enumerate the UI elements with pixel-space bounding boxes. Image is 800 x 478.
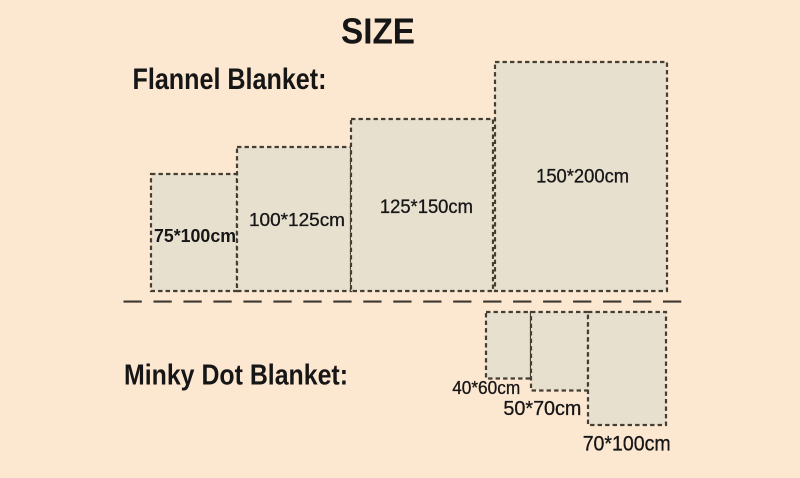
svg-text:50*70cm: 50*70cm — [503, 398, 581, 420]
svg-text:Flannel Blanket:: Flannel Blanket: — [133, 63, 327, 96]
svg-text:SIZE: SIZE — [341, 11, 415, 52]
svg-text:40*60cm: 40*60cm — [452, 377, 520, 398]
svg-text:70*100cm: 70*100cm — [583, 433, 671, 456]
svg-text:150*200cm: 150*200cm — [536, 165, 629, 187]
svg-text:125*150cm: 125*150cm — [380, 197, 473, 218]
svg-text:100*125cm: 100*125cm — [249, 210, 345, 230]
svg-text:Minky Dot Blanket:: Minky Dot Blanket: — [124, 360, 348, 392]
svg-text:75*100cm: 75*100cm — [154, 226, 236, 246]
